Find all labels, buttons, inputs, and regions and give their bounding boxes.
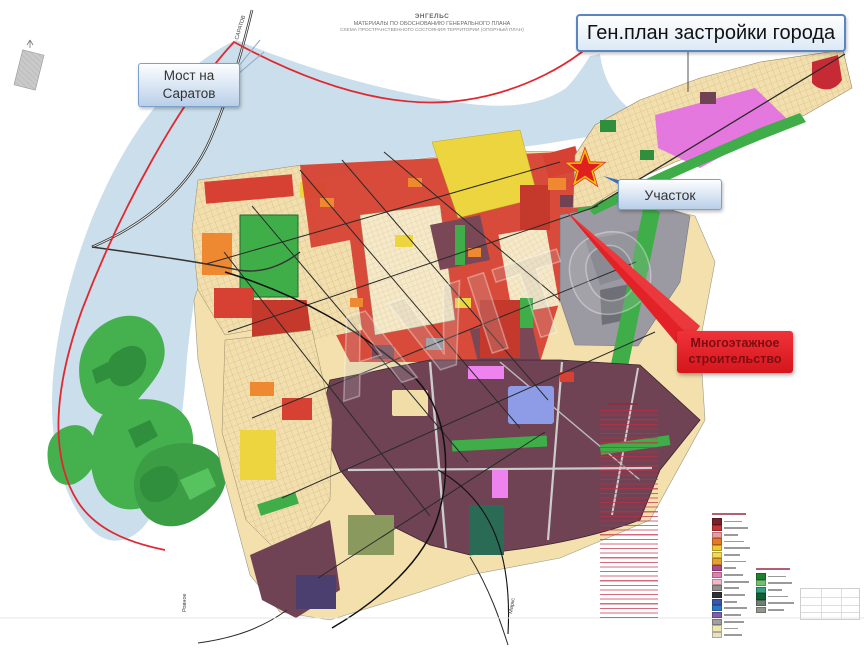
construction-callout-line1: Многоэтажное [691, 336, 780, 352]
legend-title-bar [712, 513, 746, 515]
legend-swatch-row [712, 606, 750, 611]
plot-callout: Участок [618, 179, 722, 210]
legend-swatch-row [712, 566, 750, 571]
legend-swatch-row [756, 601, 794, 606]
legend-swatch-row [712, 579, 750, 584]
legend-swatch-row [712, 599, 750, 604]
drawing-stamp-block [800, 588, 860, 620]
drawing-header-subtitle: МАТЕРИАЛЫ ПО ОБОСНОВАНИЮ ГЕНЕРАЛЬНОГО ПЛ… [272, 21, 592, 28]
legend-swatch-row [756, 608, 794, 613]
legend-swatch-row [712, 613, 750, 618]
legend-swatch-row [712, 559, 750, 564]
plot-callout-label: Участок [644, 187, 695, 203]
legend-swatch-row [756, 581, 794, 586]
legend-swatch-row [712, 526, 750, 531]
page-title-label: Ген.план застройки города [587, 22, 835, 45]
legend-swatch-row [712, 573, 750, 578]
inset-locator [14, 40, 44, 90]
legend-swatch-row [712, 633, 750, 638]
road-label-marks: Маркс [508, 597, 517, 614]
bridge-callout-line1: Мост на [164, 67, 215, 85]
legend-swatch-row [712, 620, 750, 625]
legend-swatch-row [712, 626, 750, 631]
road-label-rovnoe: Ровное [182, 593, 188, 612]
legend-swatch-row [756, 594, 794, 599]
construction-callout-line2: строительство [689, 352, 782, 368]
legend-title-bar-2 [756, 568, 790, 570]
genplan-screenshot: AVITO САРАТОВ Ровное Маркс ЭНГЕЛЬС МАТЕР… [0, 0, 864, 648]
bridge-callout-line2: Саратов [163, 85, 216, 103]
legend-swatch-row [712, 553, 750, 558]
legend-swatch-row [712, 546, 750, 551]
legend-text-list [600, 410, 658, 618]
legend-swatch-row [712, 593, 750, 598]
drawing-header-scheme: СХЕМА ПРОСТРАНСТВЕННОГО СОСТОЯНИЯ ТЕРРИТ… [272, 28, 592, 34]
construction-callout: Многоэтажное строительство [677, 331, 793, 373]
legend-swatch-row [712, 586, 750, 591]
legend-swatch-row [756, 574, 794, 579]
legend-swatches-primary [712, 513, 750, 637]
bridge-callout: Мост на Саратов [138, 63, 240, 107]
page-title: Ген.план застройки города [576, 14, 846, 52]
drawing-header-city: ЭНГЕЛЬС [272, 13, 592, 21]
legend-swatch-row [712, 533, 750, 538]
legend-swatch-row [712, 519, 750, 524]
drawing-header: ЭНГЕЛЬС МАТЕРИАЛЫ ПО ОБОСНОВАНИЮ ГЕНЕРАЛ… [272, 13, 592, 34]
legend-swatches-secondary [756, 568, 794, 612]
legend-swatch-row [712, 539, 750, 544]
legend-swatch-row [756, 588, 794, 593]
